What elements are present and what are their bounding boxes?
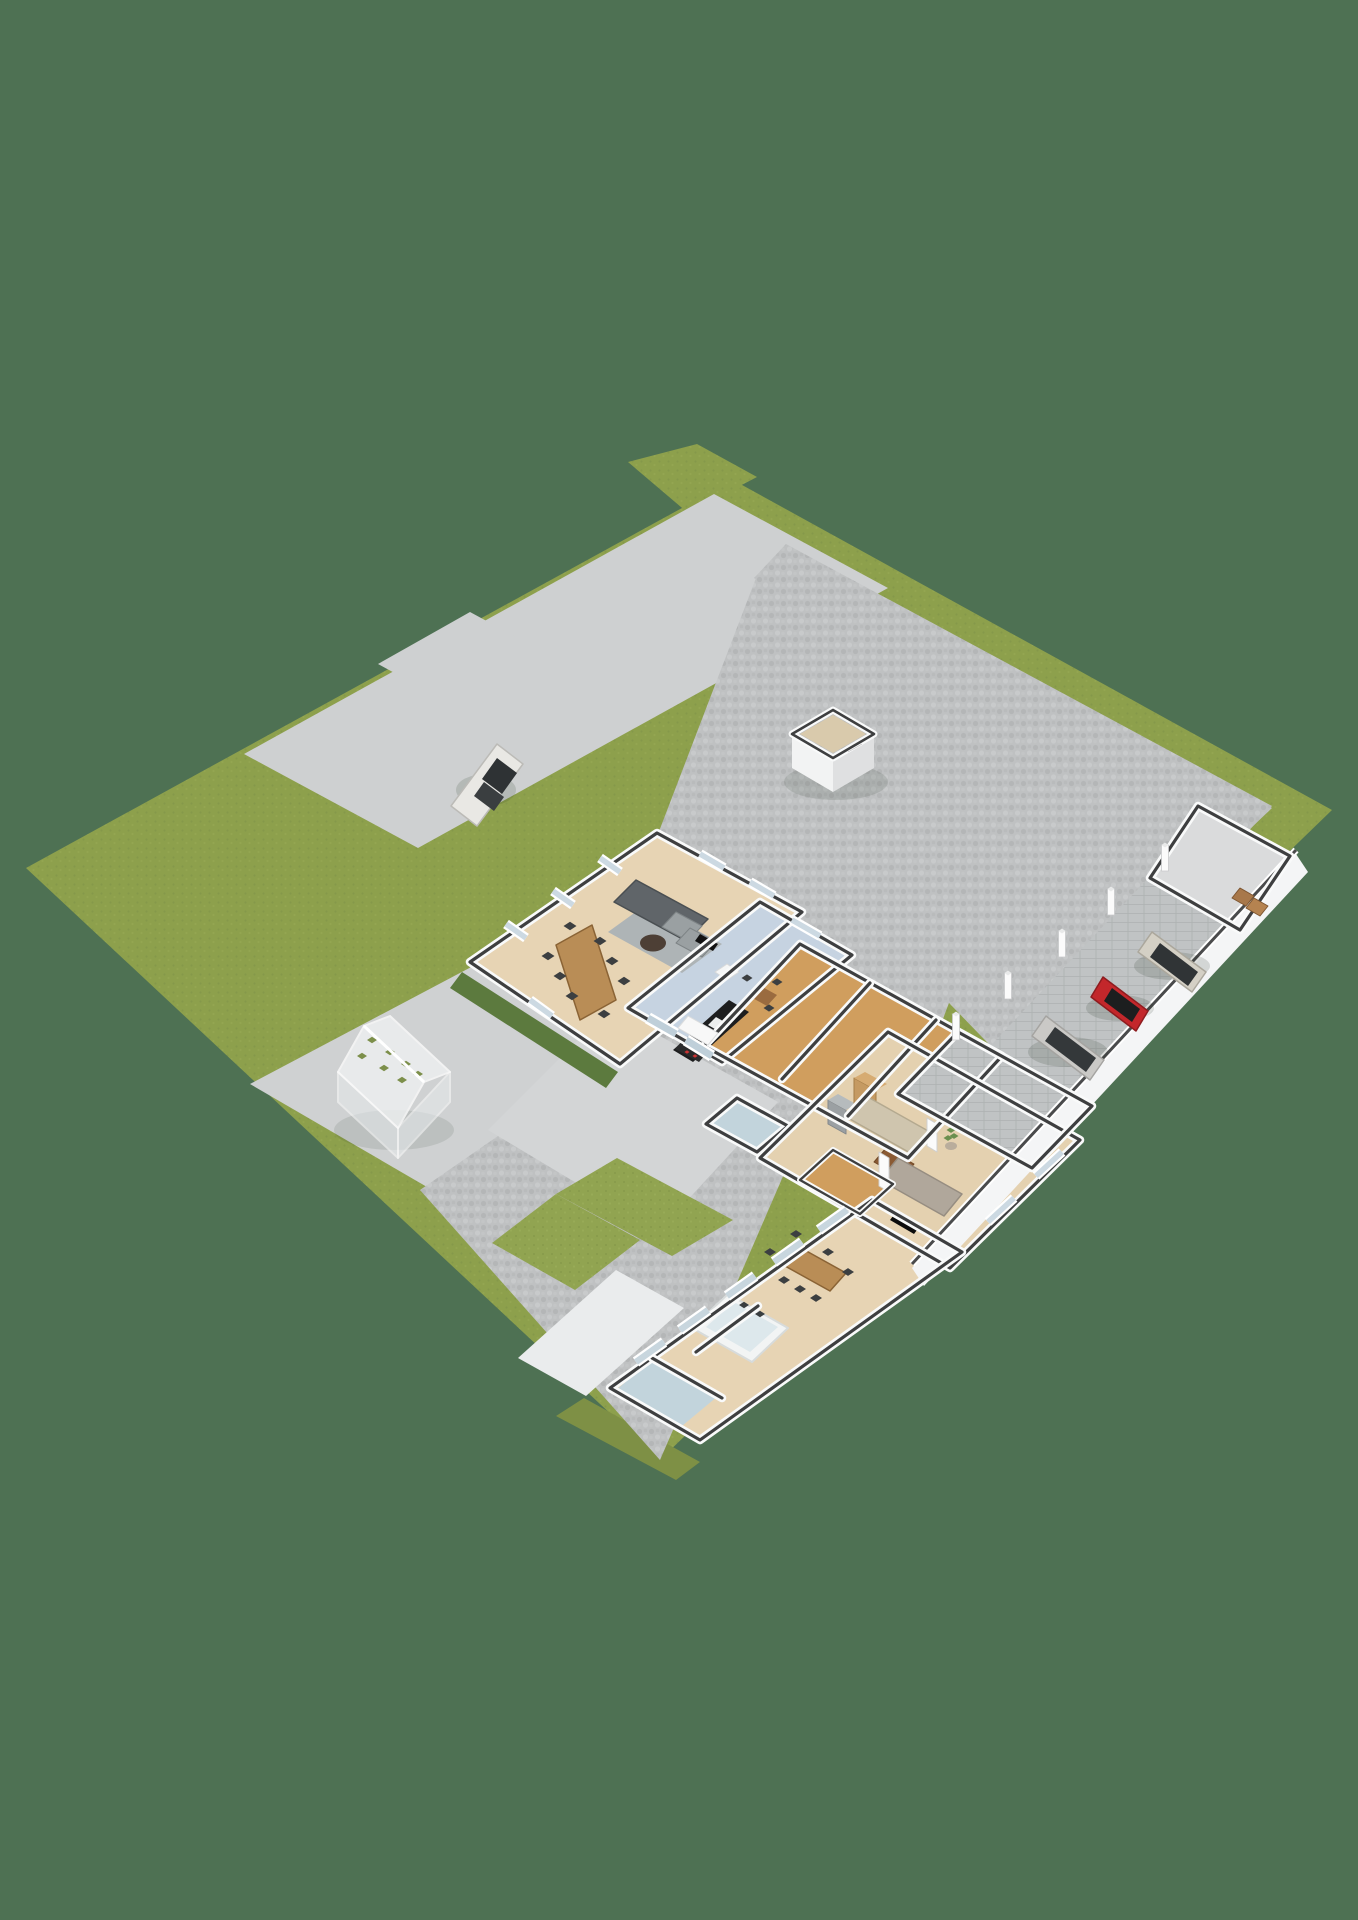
carport-pillar-2 — [1005, 971, 1012, 1000]
carport-pillar-5 — [1162, 843, 1169, 872]
scene-svg — [0, 0, 1358, 1920]
carport-pillar-3 — [1059, 929, 1066, 958]
round-coffee-table — [640, 935, 666, 952]
carport-pillar-4 — [1108, 887, 1115, 916]
plant-pot — [945, 1142, 957, 1150]
floorplan-3d-stage — [0, 0, 1358, 1920]
carport-pillar-1 — [953, 1012, 960, 1041]
